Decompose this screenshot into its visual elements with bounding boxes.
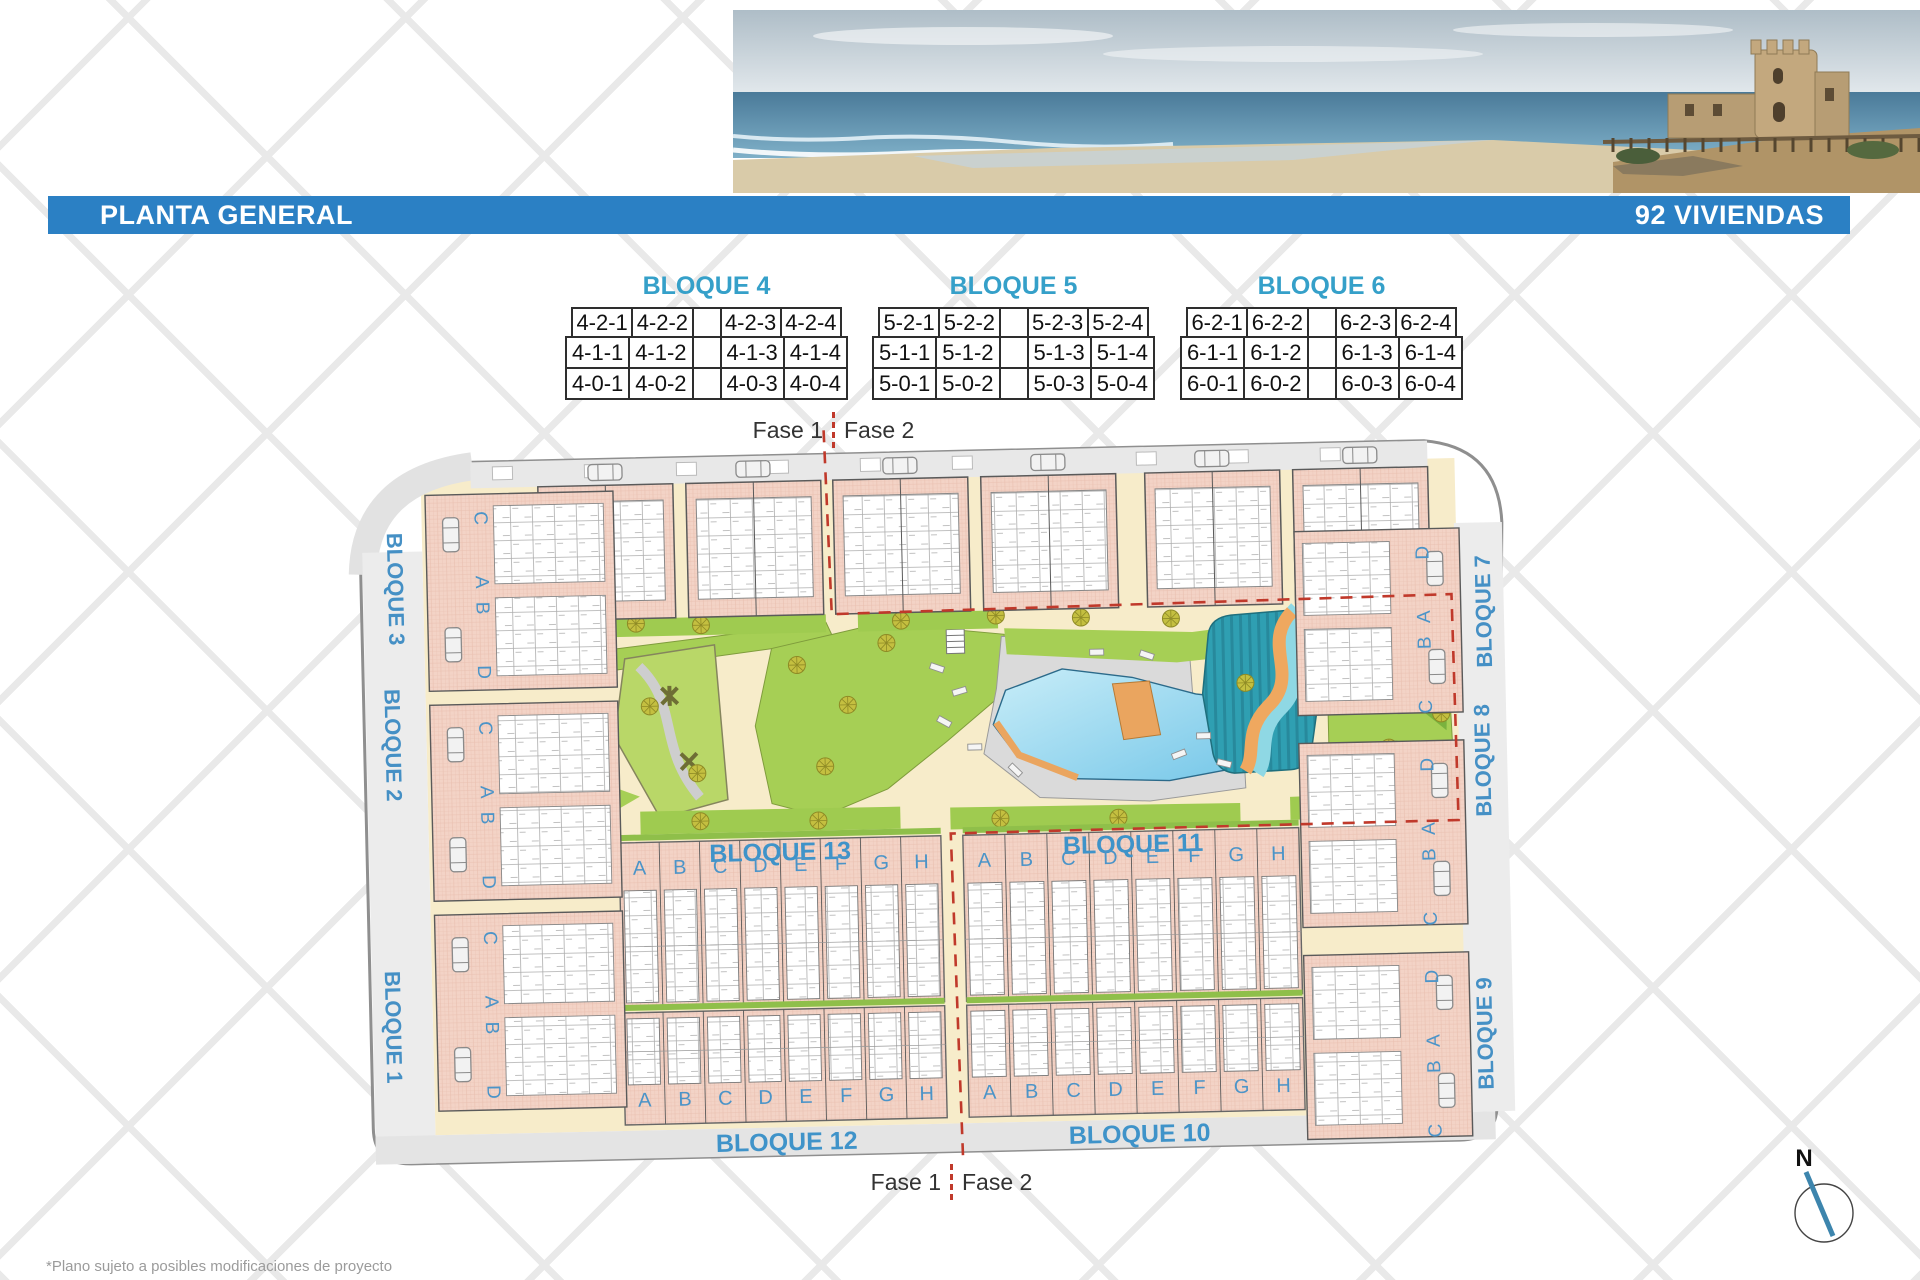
car-icon [588, 464, 622, 481]
unit-letter: D [473, 665, 494, 679]
unit-letter: G [878, 1084, 894, 1106]
left-road-label-2: BLOQUE 2 [379, 689, 407, 802]
unit-letter: C [1421, 912, 1442, 926]
unit-letter: D [482, 1085, 503, 1099]
unit-letter: F [1188, 845, 1201, 867]
unit-letter: A [977, 850, 991, 872]
unit-letter: C [718, 1088, 733, 1110]
unit-letter: B [1424, 1060, 1445, 1073]
unit-letter: C [1061, 848, 1076, 870]
unit-letter: H [1276, 1075, 1291, 1097]
tree-icon [641, 698, 658, 715]
unit-letter: D [1422, 970, 1443, 984]
unit-letter: D [758, 1087, 773, 1109]
unit-letter: F [840, 1085, 853, 1107]
unit-letter: C [1425, 1123, 1446, 1137]
car-icon [1031, 454, 1065, 471]
unit-letter: B [1414, 636, 1435, 649]
lounger-icon [1090, 649, 1104, 655]
unit-letter: E [1151, 1078, 1165, 1100]
tree-icon [839, 696, 856, 713]
unit-letter: D [478, 875, 499, 889]
unit-letter: D [1103, 847, 1118, 869]
tree-icon [689, 765, 706, 782]
unit-letter: G [1228, 844, 1244, 866]
unit-letter: G [873, 852, 889, 874]
left-road-label-3: BLOQUE 1 [380, 971, 408, 1084]
unit-letter: A [1423, 1034, 1444, 1047]
unit-letter: D [1417, 758, 1438, 772]
right-road-label-1: BLOQUE 7 [1470, 555, 1498, 668]
unit-letter: C [479, 931, 500, 945]
tree-icon [692, 813, 709, 830]
unit-letter: D [1412, 546, 1433, 560]
right-road-label-2: BLOQUE 8 [1469, 704, 1497, 817]
unit-letter: E [799, 1086, 813, 1108]
car-icon [1195, 450, 1229, 467]
tree-icon [892, 612, 909, 629]
splash-tree [1237, 674, 1254, 691]
tree-icon [810, 812, 827, 829]
car-icon [445, 628, 462, 662]
unit-letter: F [1193, 1077, 1206, 1099]
unit-letter: A [633, 857, 647, 879]
unit-letter: B [673, 857, 687, 879]
unit-letter: C [1066, 1080, 1081, 1102]
car-icon [1429, 649, 1446, 683]
tree-icon [788, 656, 805, 673]
unit-letter: A [1419, 822, 1440, 835]
unit-letter: D [1108, 1079, 1123, 1101]
lounger-icon [968, 744, 982, 750]
left-road-label-1: BLOQUE 3 [382, 533, 410, 646]
unit-letter: B [481, 1021, 502, 1034]
right-road-label-3: BLOQUE 9 [1471, 977, 1499, 1090]
unit-letter: H [914, 851, 929, 873]
unit-letter: B [1019, 849, 1033, 871]
unit-letter: C [1416, 700, 1437, 714]
lounger-icon [1197, 733, 1211, 739]
unit-letter: C [474, 721, 495, 735]
site-plan: BLOQUE 3 BLOQUE 2 BLOQUE 1 BLOQUE 7 BLOQ… [0, 0, 1920, 1280]
block10-label: BLOQUE 10 [1068, 1119, 1210, 1150]
compass-north-label: N [1795, 1145, 1812, 1172]
unit-letter: B [471, 602, 492, 615]
tree-icon [992, 810, 1009, 827]
block13-label: BLOQUE 13 [709, 837, 851, 868]
car-icon [736, 461, 770, 478]
unit-letter: F [835, 853, 848, 875]
car-icon [1438, 1073, 1455, 1107]
page: PLANTA GENERAL 92 VIVIENDAS BLOQUE 44-2-… [0, 0, 1920, 1280]
unit-letter: H [1271, 843, 1286, 865]
tree-icon [817, 758, 834, 775]
car-icon [883, 457, 917, 474]
tree-icon [878, 634, 895, 651]
unit-letter: A [1414, 610, 1435, 623]
car-icon [1434, 861, 1451, 895]
unit-letter: A [476, 785, 497, 798]
unit-letter: E [1145, 846, 1159, 868]
compass: N [1795, 1145, 1853, 1242]
compass-needle [1806, 1172, 1833, 1236]
unit-letter: A [471, 576, 492, 589]
unit-letter: C [713, 856, 728, 878]
unit-letter: B [1025, 1081, 1039, 1103]
unit-letter: A [480, 995, 501, 1008]
block11-label: BLOQUE 11 [1063, 829, 1204, 860]
unit-letter: A [638, 1089, 652, 1111]
unit-letter: B [678, 1088, 692, 1110]
car-icon [442, 518, 459, 552]
car-icon [1343, 447, 1377, 464]
unit-letter: D [753, 855, 768, 877]
car-icon [450, 838, 467, 872]
car-icon [455, 1047, 472, 1081]
unit-letter: H [919, 1083, 934, 1105]
unit-letter: A [983, 1082, 997, 1104]
unit-letter: G [1234, 1076, 1250, 1098]
plan-rotated-group: BLOQUE 3 BLOQUE 2 BLOQUE 1 BLOQUE 7 BLOQ… [358, 415, 1516, 1175]
unit-letter: B [476, 811, 497, 824]
unit-letter: C [469, 511, 490, 525]
unit-letter: B [1419, 848, 1440, 861]
tree-icon [1162, 610, 1179, 627]
tree-icon [1072, 609, 1089, 626]
car-icon [452, 938, 469, 972]
block12-label: BLOQUE 12 [716, 1127, 858, 1158]
tree-icon [692, 616, 709, 633]
footnote: *Plano sujeto a posibles modificaciones … [46, 1258, 392, 1275]
car-icon [447, 728, 464, 762]
unit-letter: E [794, 854, 808, 876]
